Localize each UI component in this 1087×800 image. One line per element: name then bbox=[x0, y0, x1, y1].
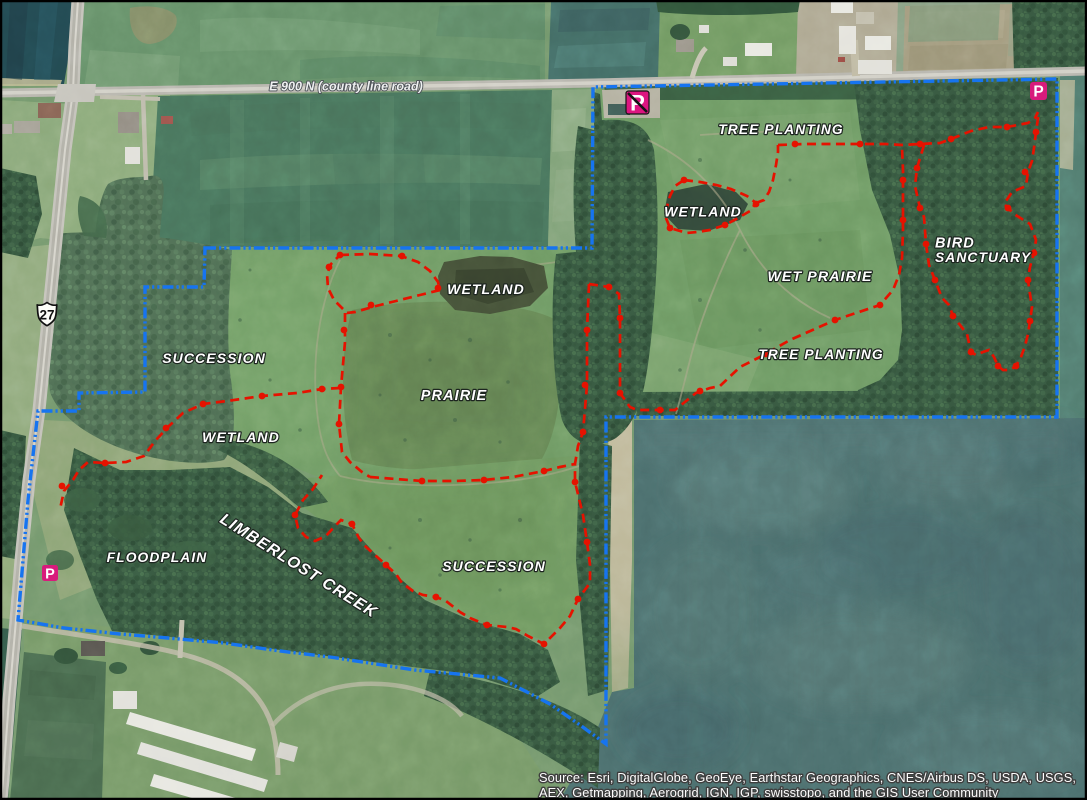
svg-text:FLOODPLAIN: FLOODPLAIN bbox=[107, 550, 208, 565]
svg-text:P: P bbox=[1033, 84, 1043, 101]
svg-text:Source: Esri, DigitalGlobe, Ge: Source: Esri, DigitalGlobe, GeoEye, Eart… bbox=[539, 770, 1076, 785]
svg-text:27: 27 bbox=[39, 308, 54, 323]
svg-text:WETLAND: WETLAND bbox=[664, 204, 742, 220]
svg-text:PRAIRIE: PRAIRIE bbox=[421, 388, 488, 404]
svg-text:SUCCESSION: SUCCESSION bbox=[442, 558, 546, 574]
svg-text:TREE PLANTING: TREE PLANTING bbox=[718, 122, 843, 137]
svg-text:WETLAND: WETLAND bbox=[447, 281, 525, 297]
svg-text:E 900 N (county line road): E 900 N (county line road) bbox=[269, 80, 423, 94]
svg-text:WETLAND: WETLAND bbox=[202, 429, 280, 445]
svg-text:SUCCESSION: SUCCESSION bbox=[162, 350, 266, 366]
svg-text:TREE PLANTING: TREE PLANTING bbox=[758, 347, 883, 362]
svg-text:P: P bbox=[45, 567, 55, 583]
svg-text:WET PRAIRIE: WET PRAIRIE bbox=[767, 269, 872, 285]
svg-text:SANCTUARY: SANCTUARY bbox=[935, 250, 1032, 265]
